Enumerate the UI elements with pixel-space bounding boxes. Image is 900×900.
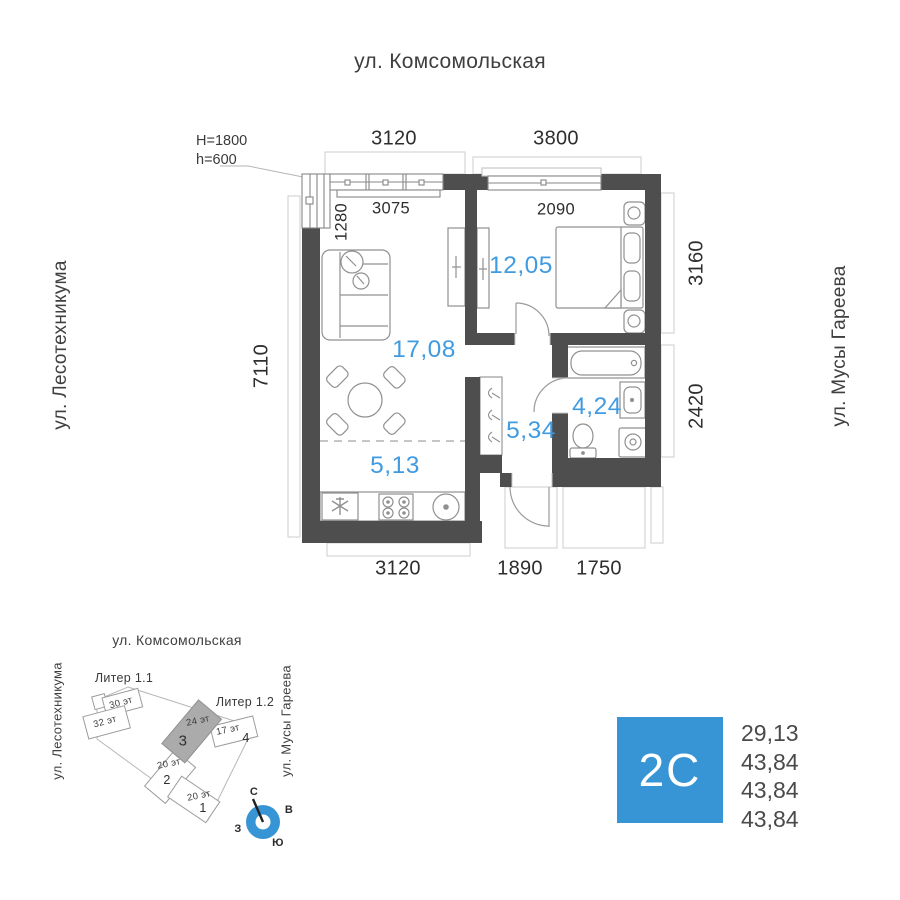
dim-right-3160: 3160 [686,240,709,286]
site-street-left: ул. Лесотехникума [50,662,65,780]
area-value: 43,84 [741,805,799,834]
site-liter-1-2: Литер 1.2 [216,695,274,709]
dim-inner-1280: 1280 [333,203,352,241]
street-top-label: ул. Комсомольская [354,50,546,74]
site-building-2-number: 2 [163,773,170,787]
room-area-bathroom: 4,24 [572,393,622,421]
dim-inner-3075: 3075 [372,200,410,219]
site-liter-1-1: Литер 1.1 [95,671,153,685]
living-room-furniture [322,228,489,437]
compass-north-label: С [250,786,258,798]
compass-south-label: Ю [272,837,284,849]
bedroom-furniture [556,202,645,333]
room-area-kitchen: 5,13 [370,452,420,480]
area-value: 29,13 [741,719,799,748]
site-street-top: ул. Комсомольская [112,632,242,648]
site-building-3-number: 3 [179,733,188,750]
balcony-note-line1: H=1800 [196,133,247,149]
room-area-bedroom: 12,05 [489,252,553,280]
dim-left-7110: 7110 [251,344,274,388]
street-left-label: ул. Лесотехникума [50,260,72,429]
dim-inner-2090: 2090 [537,201,575,220]
kitchen-appliances [320,492,465,521]
dim-top-3120: 3120 [371,128,417,151]
room-area-living: 17,08 [392,336,456,364]
dim-top-3800: 3800 [533,128,579,151]
site-building-4-number: 4 [242,731,249,745]
floorplan-page: ул. Комсомольская ул. Лесотехникума ул. … [0,0,900,900]
compass-east-label: В [285,804,293,816]
area-value: 43,84 [741,748,799,777]
site-street-right: ул. Мусы Гареева [279,665,294,777]
room-area-hallway: 5,34 [506,417,556,445]
street-right-label: ул. Мусы Гареева [829,265,851,426]
apartment-area-values: 29,13 43,84 43,84 43,84 [741,719,799,833]
compass-icon [246,799,280,839]
dim-bottom-3120: 3120 [375,558,421,581]
dim-bottom-1750: 1750 [576,558,622,581]
apartment-type-label: 2С [639,743,702,797]
site-building-1-number: 1 [199,801,206,815]
hallway-closet [480,377,502,455]
apartment-type-badge: 2С [617,717,723,823]
area-value: 43,84 [741,776,799,805]
compass-west-label: З [234,823,241,835]
balcony-note-line2: h=600 [196,152,237,168]
dim-right-2420: 2420 [686,383,709,429]
dim-bottom-1890: 1890 [497,558,543,581]
